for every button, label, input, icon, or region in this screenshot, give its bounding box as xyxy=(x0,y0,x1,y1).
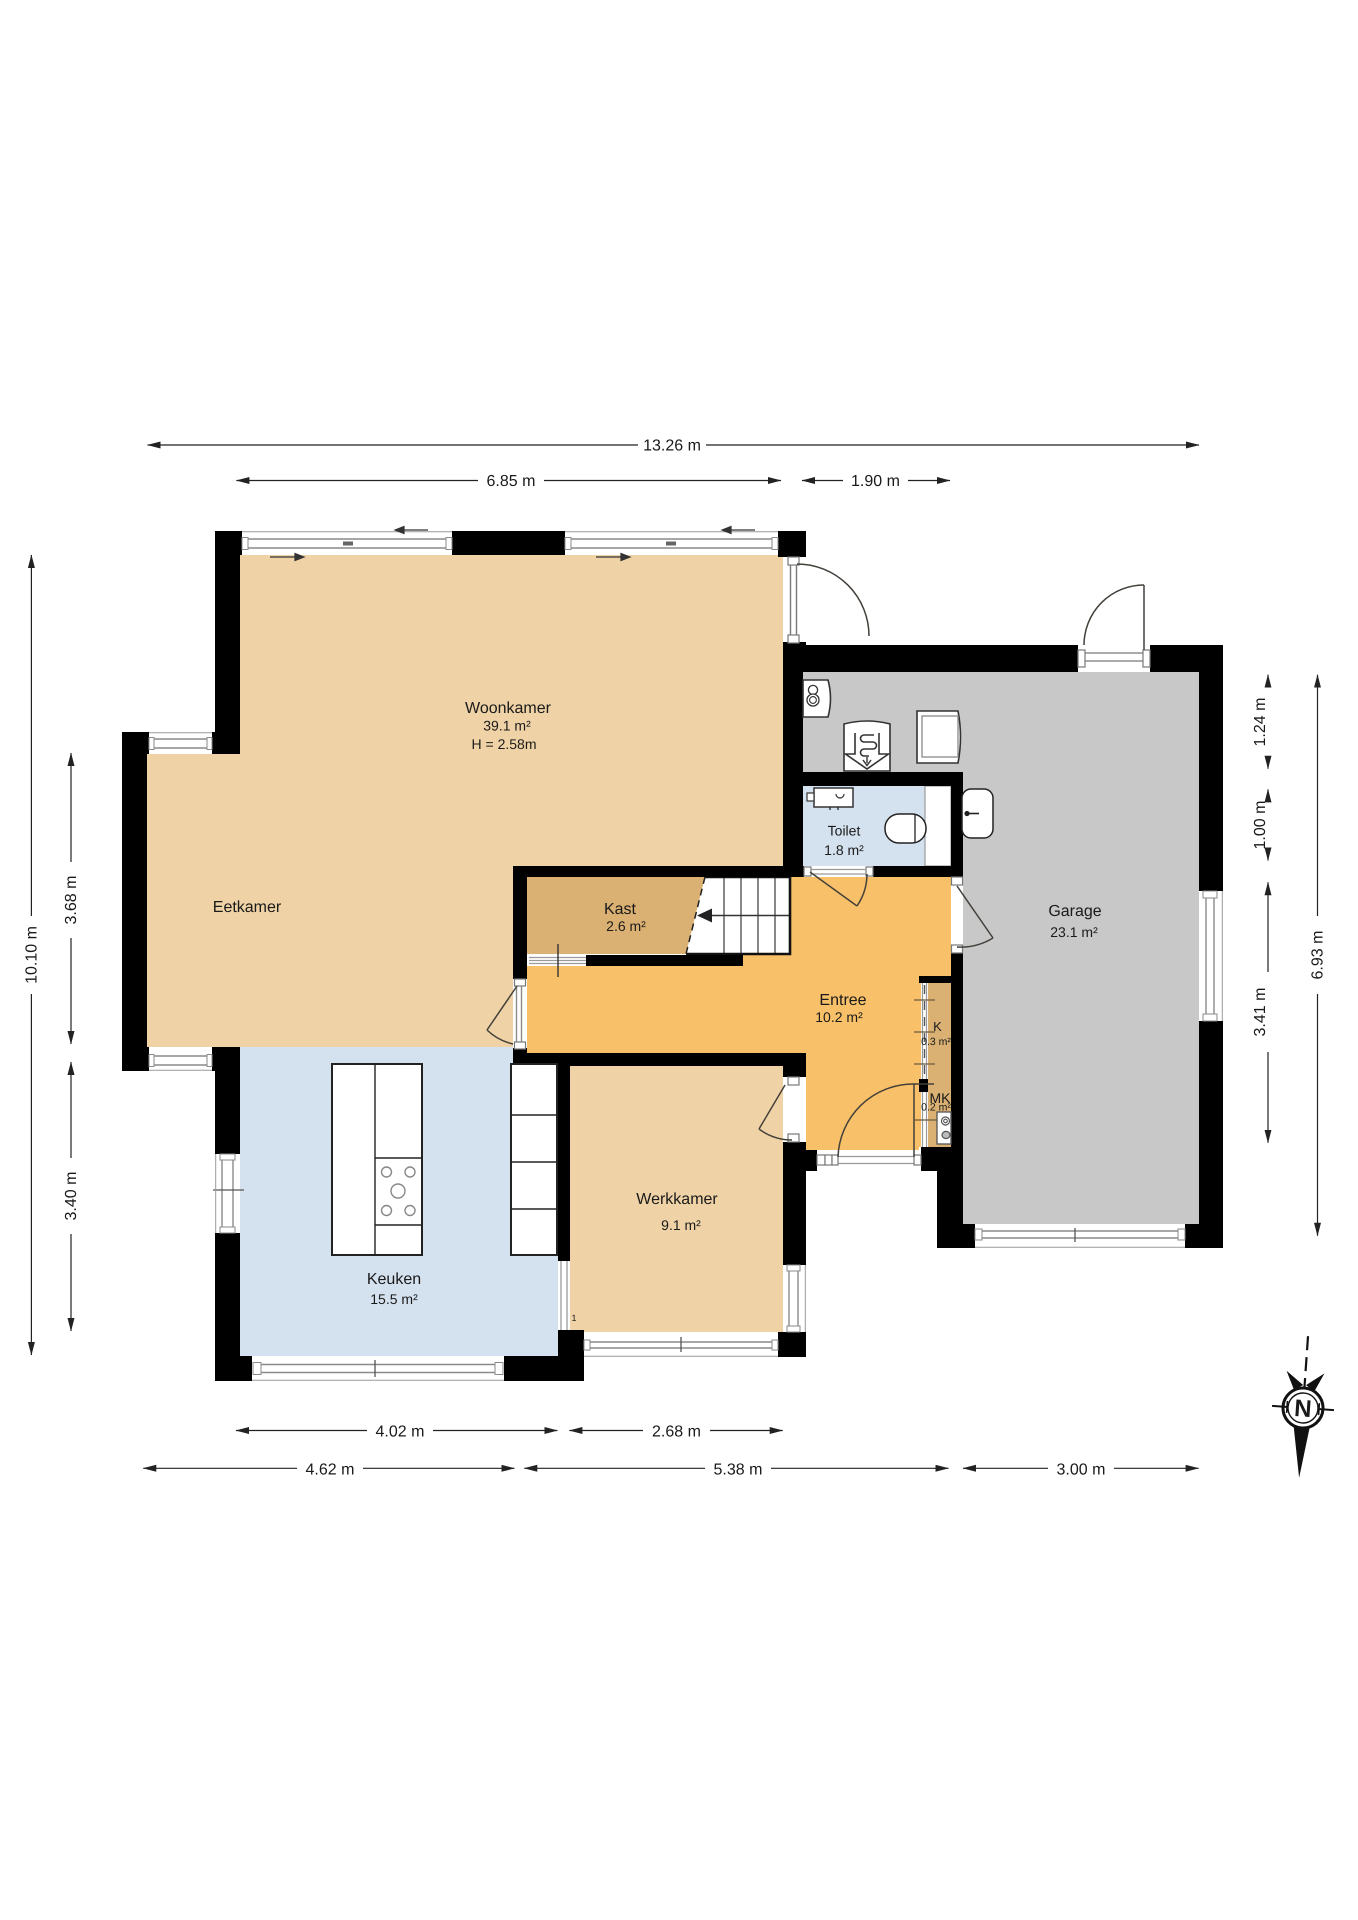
svg-text:0.3 m²: 0.3 m² xyxy=(921,1036,951,1048)
svg-text:0.2 m²: 0.2 m² xyxy=(921,1102,951,1114)
svg-text:1: 1 xyxy=(571,1313,576,1323)
svg-text:3.41 m: 3.41 m xyxy=(1252,988,1269,1037)
svg-text:K: K xyxy=(933,1019,942,1034)
svg-text:6.93 m: 6.93 m xyxy=(1310,931,1327,980)
svg-text:Eetkamer: Eetkamer xyxy=(213,899,282,916)
svg-text:9.1 m²: 9.1 m² xyxy=(661,1217,701,1233)
svg-text:3.00 m: 3.00 m xyxy=(1057,1462,1106,1479)
svg-text:4.02 m: 4.02 m xyxy=(376,1424,425,1441)
svg-text:10.10 m: 10.10 m xyxy=(24,926,41,984)
svg-text:3.40 m: 3.40 m xyxy=(63,1172,80,1221)
svg-text:3.68 m: 3.68 m xyxy=(63,876,80,925)
svg-text:1.8 m²: 1.8 m² xyxy=(824,842,864,858)
svg-text:1.90 m: 1.90 m xyxy=(851,473,900,490)
svg-text:39.1 m²: 39.1 m² xyxy=(483,718,531,734)
svg-text:10.2 m²: 10.2 m² xyxy=(815,1009,863,1025)
svg-text:2.6 m²: 2.6 m² xyxy=(606,918,646,934)
svg-text:5.38 m: 5.38 m xyxy=(714,1462,763,1479)
svg-text:23.1 m²: 23.1 m² xyxy=(1050,924,1098,940)
svg-text:Werkkamer: Werkkamer xyxy=(636,1191,718,1208)
svg-text:13.26 m: 13.26 m xyxy=(643,438,701,455)
svg-text:N: N xyxy=(1293,1395,1312,1423)
svg-text:Entree: Entree xyxy=(819,992,866,1009)
svg-text:1.24 m: 1.24 m xyxy=(1252,698,1269,747)
svg-text:Kast: Kast xyxy=(604,901,637,918)
svg-text:6.85 m: 6.85 m xyxy=(487,473,536,490)
svg-text:Garage: Garage xyxy=(1048,903,1101,920)
svg-text:4.62 m: 4.62 m xyxy=(306,1462,355,1479)
svg-text:1.00 m: 1.00 m xyxy=(1252,801,1269,850)
svg-text:15.5 m²: 15.5 m² xyxy=(370,1291,418,1307)
svg-text:2.68 m: 2.68 m xyxy=(652,1424,701,1441)
svg-text:Toilet: Toilet xyxy=(828,823,861,839)
svg-text:Keuken: Keuken xyxy=(367,1271,421,1288)
svg-text:Woonkamer: Woonkamer xyxy=(465,700,552,717)
svg-text:H = 2.58m: H = 2.58m xyxy=(472,736,537,752)
